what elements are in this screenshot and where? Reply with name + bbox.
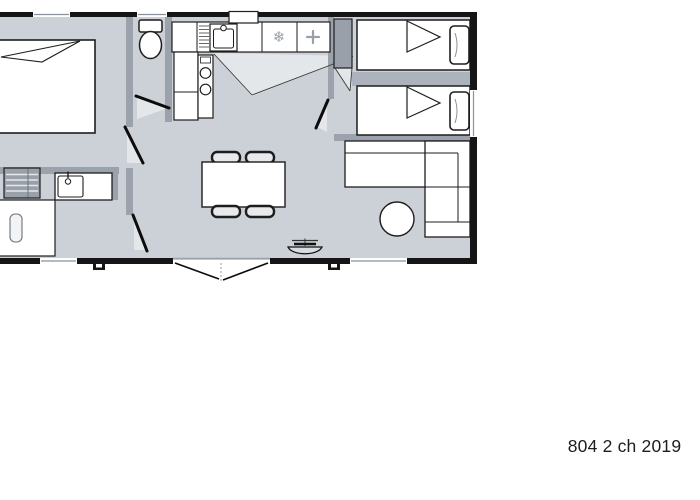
entrance-door xyxy=(173,259,270,282)
entrance-door-leaf-left xyxy=(175,263,219,279)
shower-tray xyxy=(10,214,22,242)
exterior-outlet-1 xyxy=(93,264,105,270)
top-wall-seg-3 xyxy=(167,12,229,17)
round-side-table xyxy=(380,202,414,236)
top-wall-seg-1 xyxy=(0,12,33,17)
window-bathroom-bottom xyxy=(40,258,77,264)
toilet-cistern xyxy=(139,20,162,32)
bathroom-shelf-unit xyxy=(4,168,40,198)
window-bedroom-top xyxy=(33,12,70,17)
mobile-home-floor-plan: ❄ xyxy=(0,0,700,500)
shower xyxy=(0,200,55,256)
freezer-snowflake-icon: ❄ xyxy=(273,28,286,46)
washbasin-end-panel xyxy=(112,174,118,200)
plan-model-caption: 804 2 ch 2019 xyxy=(552,436,697,457)
floor-plan-page: ❄ xyxy=(0,0,700,500)
window-bedroom2-right xyxy=(470,90,477,137)
window-living-bottom xyxy=(350,258,407,264)
bottom-wall-seg-2 xyxy=(77,258,173,264)
bottom-wall-seg-3 xyxy=(270,258,350,264)
dining-table xyxy=(202,162,285,207)
dining-chair-3 xyxy=(212,206,240,217)
kitchen-sink-basin xyxy=(214,29,234,48)
top-wall-seg-4 xyxy=(258,12,477,17)
drainboard xyxy=(199,26,209,47)
hob-control-panel xyxy=(201,57,211,63)
exterior-outlet-2 xyxy=(328,264,340,270)
window-kitchen-top xyxy=(229,12,258,24)
bottom-wall-seg-4 xyxy=(407,258,477,264)
hob-burner-2 xyxy=(200,84,211,95)
toilet-bowl xyxy=(140,32,162,59)
right-wall-seg-2 xyxy=(470,137,477,264)
wardrobe xyxy=(334,19,352,68)
entrance-door-leaf-right xyxy=(223,263,268,280)
kitchen-faucet-icon xyxy=(221,25,227,31)
bottom-wall-seg-1 xyxy=(0,258,40,264)
shelf-between-beds xyxy=(352,72,470,86)
kitchen-tall-unit xyxy=(174,52,198,120)
top-wall-seg-2 xyxy=(70,12,137,17)
pillow-2 xyxy=(450,92,469,130)
hob-burner-1 xyxy=(200,68,211,79)
wall-bathroom-hall xyxy=(126,168,133,215)
washbasin-drain xyxy=(65,179,70,184)
right-wall-seg-1 xyxy=(470,12,477,90)
dining-chair-4 xyxy=(246,206,274,217)
window-wc-top xyxy=(137,12,167,17)
wall-bedroom-wc xyxy=(126,17,133,127)
corner-sofa-vertical xyxy=(425,141,470,237)
pillow-1 xyxy=(450,26,469,64)
washbasin xyxy=(58,176,83,197)
